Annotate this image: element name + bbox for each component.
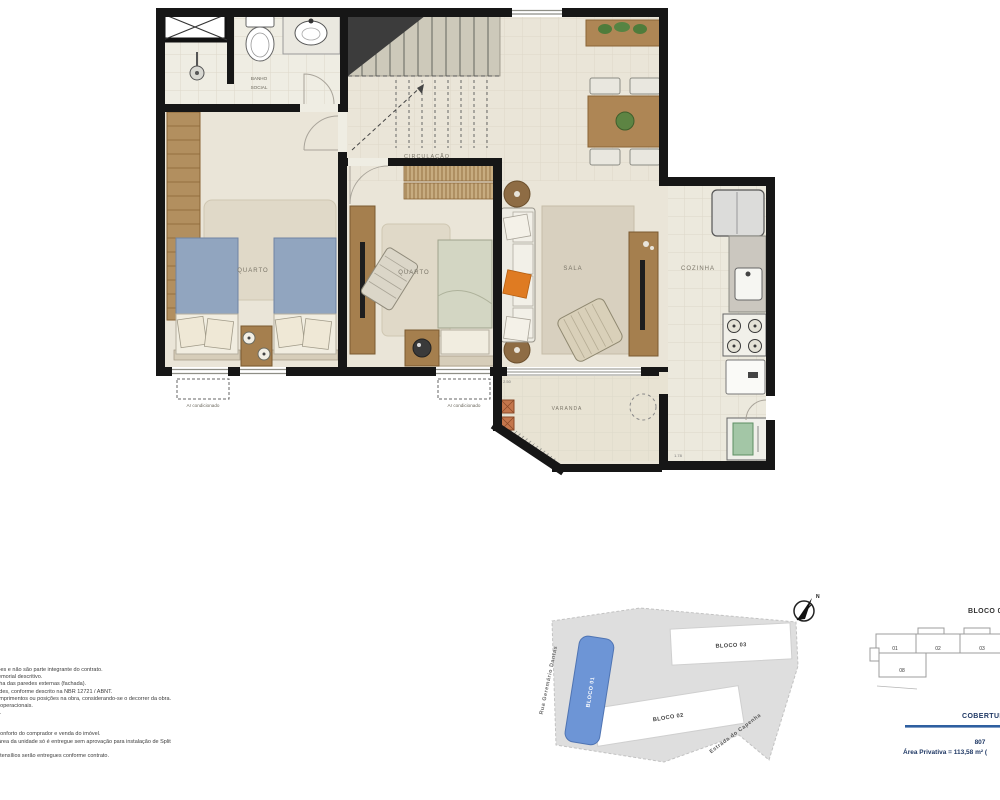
orange-pillow xyxy=(503,270,531,298)
nightstand xyxy=(241,326,272,366)
floor-plan: BANHO SOCIAL CIRCULAÇÃO QUARTO QUARTO SA… xyxy=(156,8,775,472)
cozinha-label: COZINHA xyxy=(681,266,715,272)
ac-unit-box xyxy=(177,379,229,399)
disclaimer-line: instalados para o conforto do comprador … xyxy=(0,731,299,738)
tv-icon xyxy=(360,242,365,318)
north-arrow-icon xyxy=(794,598,814,621)
decor-bowl-icon xyxy=(413,339,431,357)
disclaimer-line: de restrições. Os utensílios serão entre… xyxy=(0,753,299,760)
disclaimer-line: ção entre as unidades, conforme descrito… xyxy=(0,689,299,696)
disclaimer-line: vas. xyxy=(0,746,299,753)
sala-label: SALA xyxy=(563,266,582,272)
keyplan-title: BLOCO 03 xyxy=(968,608,1000,615)
cabinet xyxy=(726,360,765,394)
disclaimer-line: são meras sugestões e não são parte inte… xyxy=(0,667,299,674)
toilet-icon xyxy=(246,16,274,61)
key-unit-label: 01 xyxy=(892,646,898,652)
north-label: N xyxy=(816,594,820,600)
fridge-icon xyxy=(712,190,764,236)
disclaimer-line: , diferença s/ ar comprimentos ou posiçõ… xyxy=(0,696,299,703)
dimension-label: 2.50 xyxy=(503,379,512,384)
banho-social-label: BANHO xyxy=(251,76,268,81)
key-plan: 01 02 03 08 BLOCO 03 COBERTURA 807 Área … xyxy=(870,608,1000,756)
site-plan: BLOCO 03 BLOCO 02 BLOCO 01 Rua Geremário… xyxy=(539,594,820,762)
table-plant-icon xyxy=(616,112,634,130)
laundry-tub-icon xyxy=(727,418,769,460)
cobertura-label: COBERTURA xyxy=(962,713,1000,720)
disclaimer-text: são meras sugestões e não são parte inte… xyxy=(0,667,299,760)
stove-icon xyxy=(723,314,766,356)
disclaimer-line: tadas conforme memorial descritivo. xyxy=(0,674,299,681)
ac-units xyxy=(177,379,490,399)
ac-label: Ar condicionado xyxy=(187,403,220,408)
sofa xyxy=(501,208,535,342)
disclaimer-line: ção e apresentada. xyxy=(0,710,299,717)
key-plan-outline xyxy=(870,628,1000,677)
quarto2-label: QUARTO xyxy=(398,270,429,276)
double-bed xyxy=(436,240,494,366)
washbasin-icon xyxy=(283,14,340,54)
accent-rule xyxy=(905,725,1000,728)
disclaimer-line: da entrega pela linha das paredes extern… xyxy=(0,681,299,688)
single-bed-2 xyxy=(272,238,338,360)
single-bed-1 xyxy=(174,238,240,360)
unit-number: 807 xyxy=(975,739,986,746)
key-unit-label: 08 xyxy=(899,668,905,674)
disclaimer-line: são sugestivos. A área da unidade só é e… xyxy=(0,739,299,746)
disclaimer-line: não mobiliadas ou operacionais. xyxy=(0,703,299,710)
ac-label: Ar condicionado xyxy=(448,403,481,408)
varanda-label: VARANDA xyxy=(552,406,583,412)
area-label: Área Privativa = 113,58 m² ( xyxy=(903,747,988,756)
svg-text:SOCIAL: SOCIAL xyxy=(251,85,268,90)
living-room xyxy=(501,181,658,363)
key-unit-label: 02 xyxy=(935,646,941,652)
dimension-label: 1.78 xyxy=(674,453,683,458)
quarto1-label: QUARTO xyxy=(237,268,268,274)
circulacao-label: CIRCULAÇÃO xyxy=(404,153,450,160)
tv-icon xyxy=(640,260,645,330)
floorplan-sheet: BANHO SOCIAL CIRCULAÇÃO QUARTO QUARTO SA… xyxy=(0,0,1000,800)
key-unit-label: 03 xyxy=(979,646,985,652)
ac-unit-box xyxy=(438,379,490,399)
